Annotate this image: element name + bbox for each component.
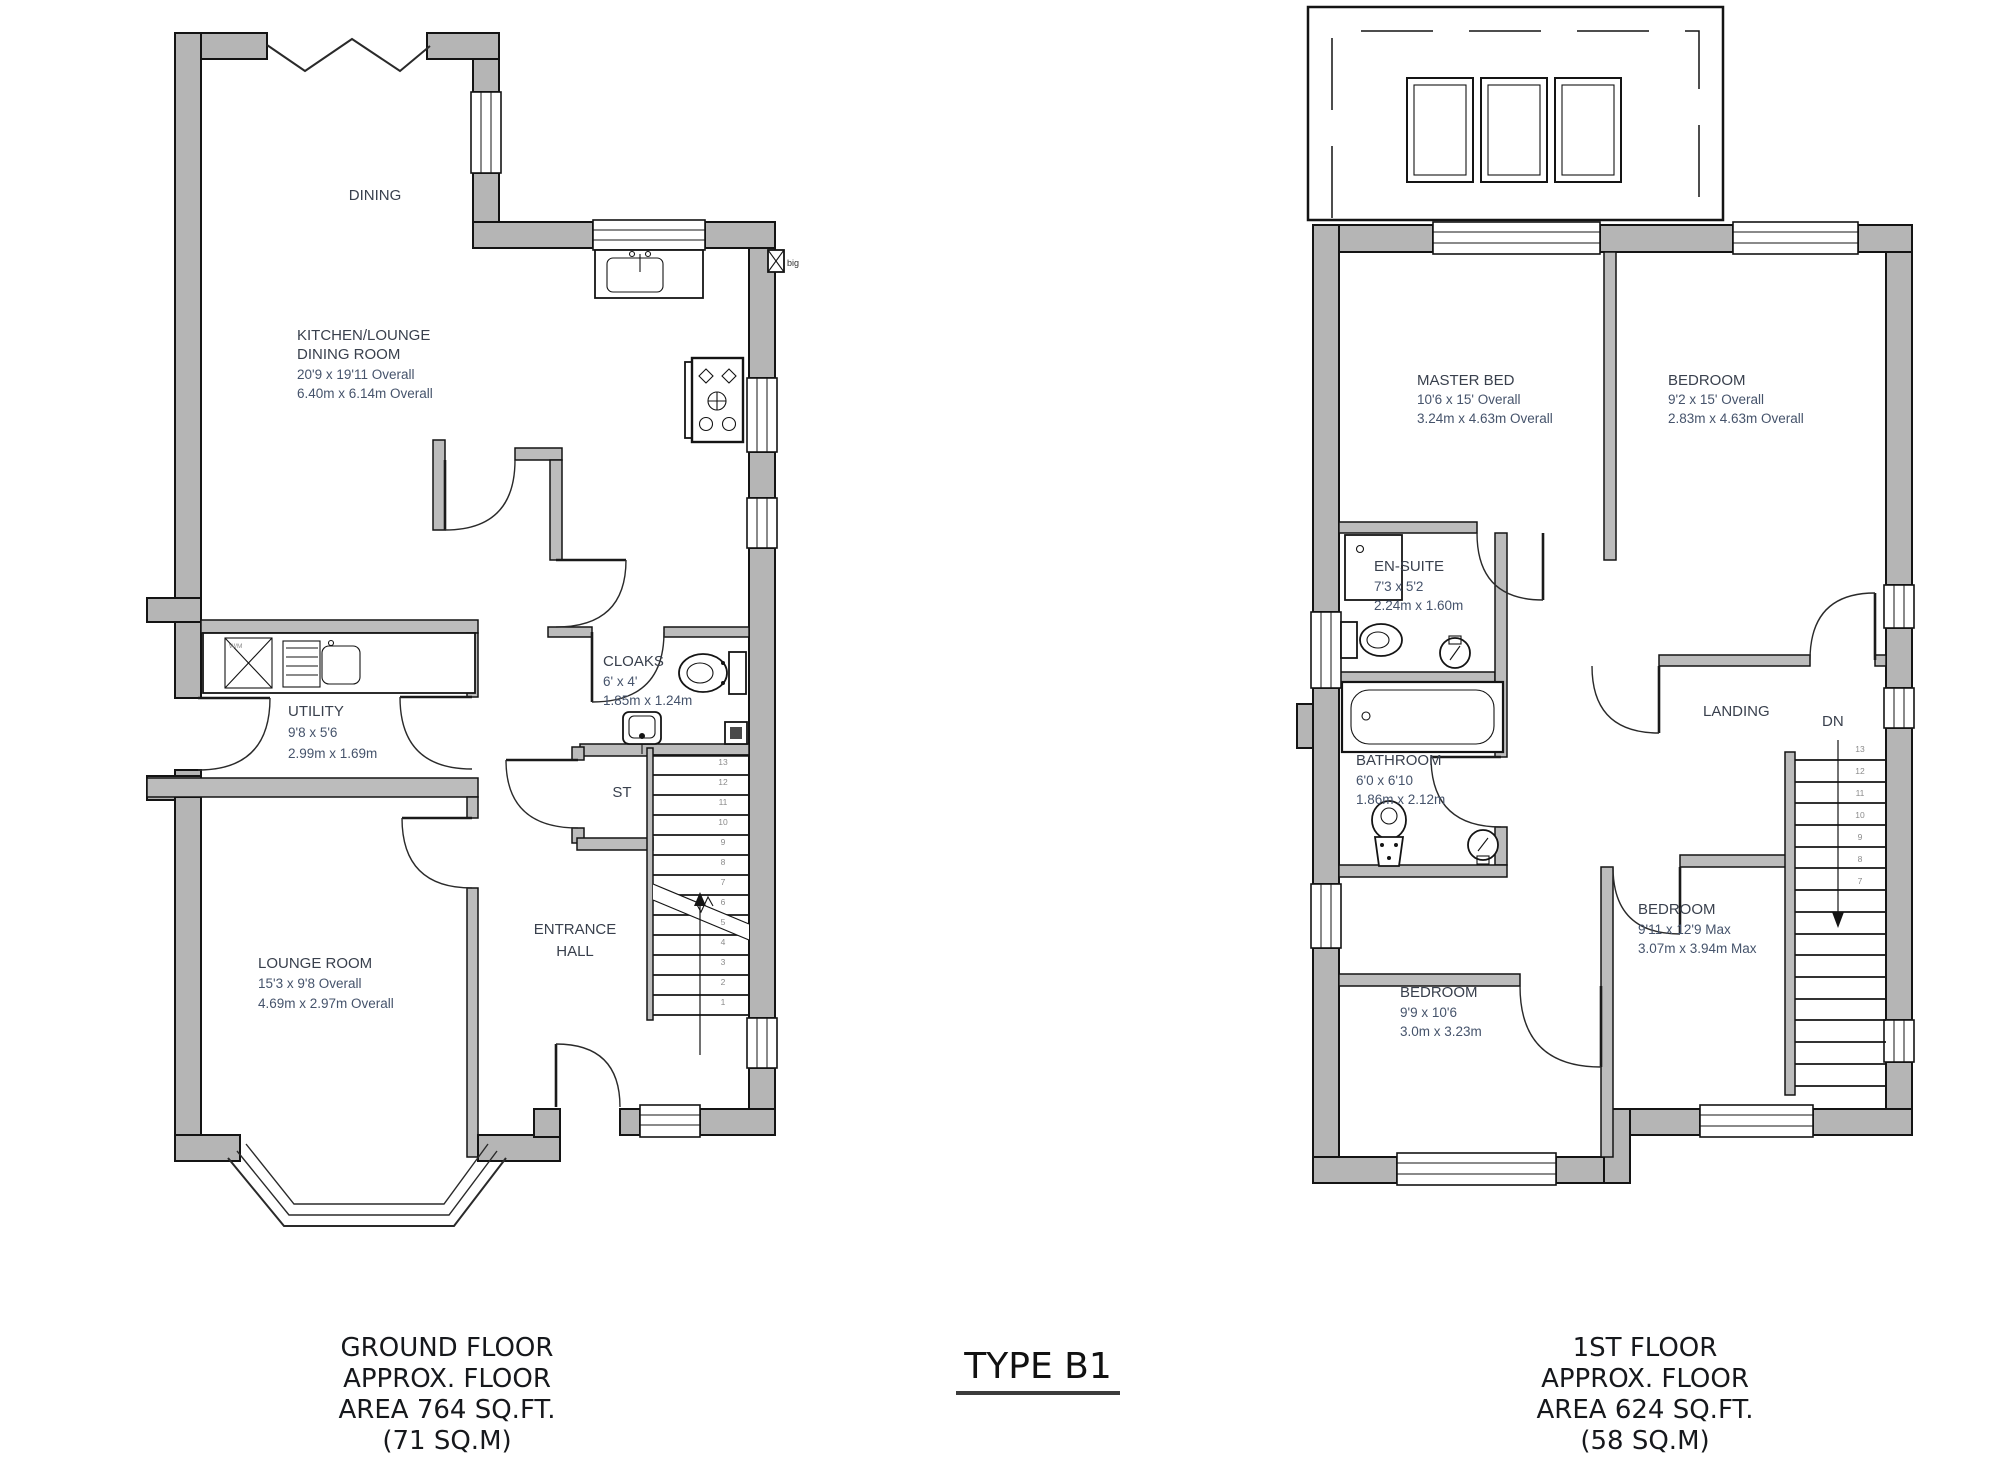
utility-dim-imperial: 9'8 x 5'6 [288,725,337,740]
ensuite-toilet-fixture [1341,622,1402,658]
landing-label: LANDING [1703,703,1770,720]
kitchen-dim-imperial: 20'9 x 19'11 Overall [297,367,414,382]
cloaks-cupboard-fixture [725,722,747,744]
bedroom2-dim-imperial: 9'2 x 15' Overall [1668,392,1764,407]
master-bed-dim-imperial: 10'6 x 15' Overall [1417,392,1520,407]
plan-title-text: TYPE B1 [956,1346,1119,1395]
bedroom3-dim-metric: 3.07m x 3.94m Max [1638,941,1757,956]
utility-counter-fixture: W/M [203,633,475,693]
kitchen-label-line2: DINING ROOM [297,346,400,363]
floorplan-page: { "plan_title": "TYPE B1", "ground_floor… [0,0,2000,1472]
cloaks-dim-metric: 1.85m x 1.24m [603,693,692,708]
lounge-dim-imperial: 15'3 x 9'8 Overall [258,976,361,991]
stairs-down-label: DN [1822,713,1844,730]
stair-number: 6 [721,897,726,907]
stair-number: 13 [1855,744,1865,754]
stair-number: 11 [1856,788,1865,798]
bathroom-dim-imperial: 6'0 x 6'10 [1356,773,1413,788]
utility-dim-metric: 2.99m x 1.69m [288,746,377,761]
kitchen-dim-metric: 6.40m x 6.14m Overall [297,386,433,401]
ensuite-dim-metric: 2.24m x 1.60m [1374,598,1463,613]
dining-label: DINING [349,187,402,204]
first-floor-caption-line: (58 SQ.M) [1445,1426,1845,1457]
ground-floor-caption-line: GROUND FLOOR [247,1333,647,1364]
stair-number: 7 [1858,876,1863,886]
ensuite-basin-fixture [1440,636,1470,668]
first-floor-caption-line: APPROX. FLOOR [1445,1364,1845,1395]
first-floor-caption-line: 1ST FLOOR [1445,1333,1845,1364]
bifold-door [267,39,430,71]
ensuite-dim-imperial: 7'3 x 5'2 [1374,579,1423,594]
ensuite-label: EN-SUITE [1374,558,1444,575]
bedroom3-label: BEDROOM [1638,901,1716,918]
stair-number: 4 [721,937,726,947]
stair-number: 1 [721,997,726,1007]
bedroom4-label: BEDROOM [1400,984,1478,1001]
bathroom-toilet-fixture [1372,801,1406,866]
bedroom4-dim-imperial: 9'9 x 10'6 [1400,1005,1457,1020]
ground-floor-caption-line: AREA 764 SQ.FT. [247,1395,647,1426]
stair-number: 5 [721,917,726,927]
lounge-dim-metric: 4.69m x 2.97m Overall [258,996,394,1011]
stair-number: 8 [721,857,726,867]
master-bed-label: MASTER BED [1417,372,1515,389]
bedroom2-label: BEDROOM [1668,372,1746,389]
cloaks-dim-imperial: 6' x 4' [603,674,637,689]
bathtub-fixture [1342,682,1503,752]
first-floor-caption: 1ST FLOOR APPROX. FLOOR AREA 624 SQ.FT. … [1445,1333,1845,1457]
stair-number: 7 [721,877,726,887]
first-floor-caption-line: AREA 624 SQ.FT. [1445,1395,1845,1426]
kitchen-sink-fixture [595,250,703,298]
ground-floor-caption: GROUND FLOOR APPROX. FLOOR AREA 764 SQ.F… [247,1333,647,1457]
cloaks-toilet-fixture [679,652,746,694]
cloaks-label: CLOAKS [603,653,664,670]
boiler-label: big [787,258,799,268]
stair-number: 12 [718,777,728,787]
store-label: ST [612,784,631,801]
ground-floor-caption-line: (71 SQ.M) [247,1426,647,1457]
stairs-up: 13 12 11 10 9 8 7 6 5 4 3 2 1 [653,755,749,1055]
bedroom4-dim-metric: 3.0m x 3.23m [1400,1024,1482,1039]
dormer [1308,7,1723,220]
stair-number: 13 [718,757,728,767]
hob-fixture [685,358,743,442]
ground-floor-plan: W/M big [140,20,820,1250]
bedroom3-dim-imperial: 9'11 x 12'9 Max [1638,922,1731,937]
stairs-down: 13 12 11 10 9 8 7 [1795,740,1886,1086]
stair-number: 2 [721,977,726,987]
stair-number: 12 [1855,766,1865,776]
bathroom-label: BATHROOM [1356,752,1442,769]
utility-label: UTILITY [288,703,344,720]
bathroom-basin-fixture [1468,830,1498,864]
stair-number: 9 [1858,832,1863,842]
stair-number: 8 [1858,854,1863,864]
stair-number: 10 [718,817,728,827]
boiler-fixture: big [768,250,799,272]
lounge-label: LOUNGE ROOM [258,955,372,972]
stair-number: 9 [721,837,726,847]
washer-label: W/M [229,643,242,650]
stair-number: 11 [719,797,728,807]
ground-floor-walls [147,33,775,1161]
first-floor-plan: 13 12 11 10 9 8 7 MASTER BED 10'6 x 15' … [1290,0,1925,1250]
plan-title: TYPE B1 [888,1346,1188,1395]
master-bed-dim-metric: 3.24m x 4.63m Overall [1417,411,1553,426]
bedroom2-dim-metric: 2.83m x 4.63m Overall [1668,411,1804,426]
ground-floor-caption-line: APPROX. FLOOR [247,1364,647,1395]
kitchen-label: KITCHEN/LOUNGE [297,327,430,344]
bathroom-dim-metric: 1.86m x 2.12m [1356,792,1445,807]
stair-number: 3 [721,957,726,967]
entrance-hall-label: ENTRANCE [534,921,617,938]
stair-number: 10 [1855,810,1865,820]
bay-window [228,1144,506,1226]
entrance-hall-label-line2: HALL [556,943,594,960]
